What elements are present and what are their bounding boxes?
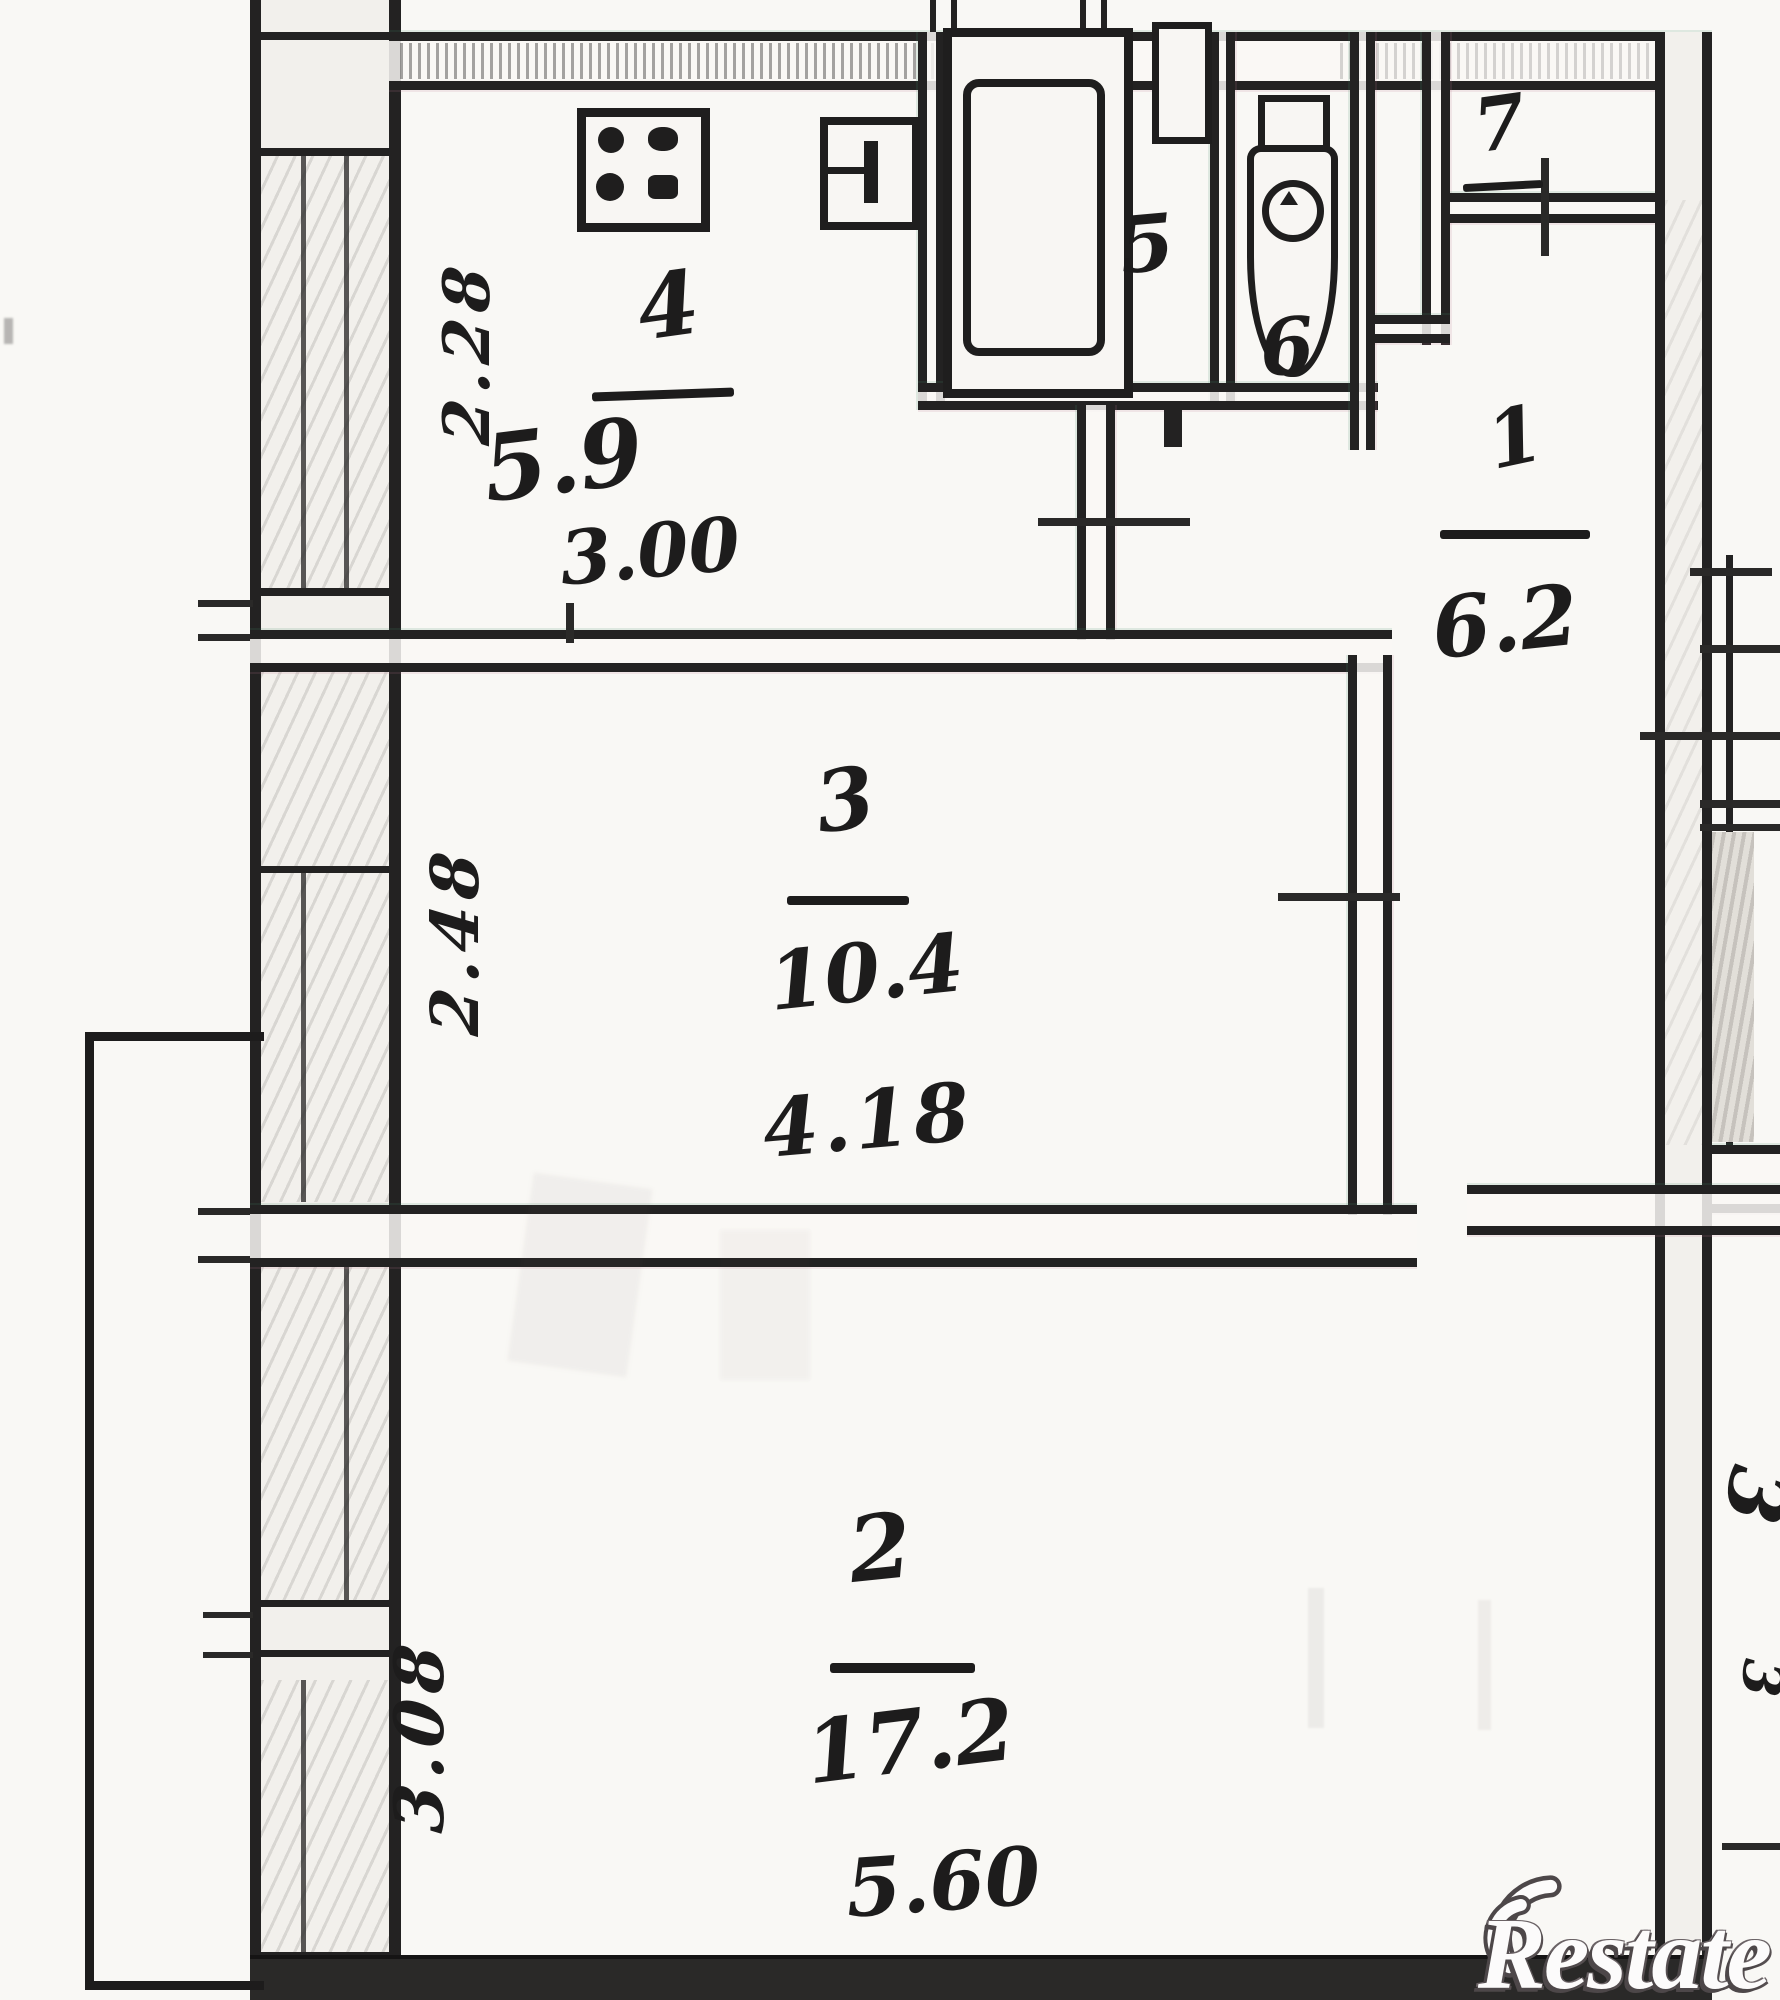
bathtub-inner bbox=[963, 79, 1105, 356]
room-label-room2-number: 2 bbox=[844, 1500, 916, 1596]
wall-shaft-connector bbox=[1375, 315, 1450, 343]
right-stub bbox=[1700, 645, 1780, 653]
wall-vent-shaft bbox=[1422, 32, 1450, 345]
fraction-bar-room3 bbox=[787, 896, 909, 905]
window-segment bbox=[261, 672, 389, 1202]
faint-smudge bbox=[1308, 1588, 1324, 1728]
wall-wc-right bbox=[1350, 32, 1375, 450]
door-tick-room3 bbox=[1278, 893, 1400, 901]
window-glass-line bbox=[344, 1267, 349, 1600]
wall-divider bbox=[250, 32, 400, 40]
bathtub-icon bbox=[943, 28, 1133, 398]
edge-mark-upper: 3 bbox=[1712, 1461, 1780, 1530]
scan-artifact bbox=[4, 318, 13, 344]
door-jamb-bath bbox=[1164, 405, 1182, 447]
burner bbox=[648, 127, 678, 151]
right-window-segment bbox=[1712, 832, 1754, 1142]
sink-icon bbox=[820, 117, 920, 230]
room-label-kitchen-number: 4 bbox=[632, 257, 705, 353]
balcony-outline bbox=[85, 1032, 264, 1990]
dim-label-kitchen-width: 3.00 bbox=[557, 507, 743, 596]
floorplan-scan: 2.28 4 5.9 3.00 2.48 3 10.4 4.18 3.08 2 … bbox=[0, 0, 1780, 2000]
dim-tick bbox=[198, 634, 253, 641]
wall-kitchen-bath bbox=[918, 32, 945, 410]
room-label-closet-number: 7 bbox=[1469, 84, 1530, 164]
underline-closet bbox=[1463, 180, 1543, 192]
wall-divider bbox=[250, 588, 400, 596]
top-wall-hatch bbox=[400, 43, 940, 79]
edge-mark-lower: 3 bbox=[1733, 1657, 1780, 1699]
wall-bath-wc bbox=[1210, 32, 1235, 405]
wall-room3-right bbox=[1348, 655, 1392, 1215]
burner bbox=[596, 173, 624, 201]
dim-tick bbox=[1722, 1843, 1780, 1850]
room-label-bath-number: 5 bbox=[1117, 204, 1178, 286]
right-wall-outer-line bbox=[1702, 32, 1712, 1958]
sink-tap-handle bbox=[864, 141, 878, 203]
wall-divider bbox=[250, 148, 400, 156]
faint-smudge bbox=[507, 1173, 652, 1378]
right-wall-inner-line bbox=[1655, 32, 1665, 1958]
wall-divider bbox=[250, 1600, 400, 1607]
dim-tick bbox=[1640, 732, 1780, 740]
room-label-hall-area: 6.2 bbox=[1428, 573, 1582, 672]
room-label-hall-number: 1 bbox=[1480, 394, 1549, 482]
room-label-room2-area: 17.2 bbox=[801, 1687, 1019, 1798]
wall-divider bbox=[250, 866, 400, 873]
dim-label-room2-depth: 3.08 bbox=[386, 1635, 454, 1836]
fraction-bar-hall bbox=[1440, 530, 1590, 539]
wall-kitchen-bottom bbox=[250, 630, 1392, 672]
wall-room3-room2 bbox=[250, 1205, 1417, 1267]
toilet-seat bbox=[1262, 180, 1324, 242]
dim-tick bbox=[198, 600, 253, 607]
room-label-wc-number: 6 bbox=[1257, 307, 1318, 389]
sink-tap bbox=[828, 167, 868, 174]
window-segment bbox=[261, 1267, 389, 1600]
burner bbox=[598, 127, 624, 153]
watermark-text: Restate bbox=[1478, 1896, 1770, 2000]
window-glass-line bbox=[344, 150, 349, 588]
room-label-room3-number: 3 bbox=[810, 754, 880, 845]
wall-divider bbox=[250, 1650, 400, 1657]
top-wall-hatch bbox=[1340, 43, 1655, 79]
room-label-kitchen-area: 5.9 bbox=[478, 405, 648, 516]
burner bbox=[648, 175, 678, 199]
door-tick-kitchen bbox=[1038, 518, 1190, 526]
dim-label-room2-width: 5.60 bbox=[843, 1835, 1043, 1928]
window-glass-line bbox=[301, 1680, 306, 1952]
dim-tick-300 bbox=[566, 603, 574, 643]
dim-label-room3-depth: 2.48 bbox=[422, 842, 488, 1038]
right-wall-cavity bbox=[1665, 200, 1702, 1145]
right-stub bbox=[1700, 824, 1780, 831]
window-glass-line bbox=[301, 872, 306, 1202]
dim-label-room3-width: 4.18 bbox=[759, 1071, 976, 1169]
toilet-drain bbox=[1280, 191, 1298, 205]
door-tick-closet bbox=[1541, 158, 1549, 256]
right-stub bbox=[1690, 568, 1772, 576]
right-stub bbox=[1700, 800, 1780, 808]
window-segment bbox=[261, 150, 389, 588]
stove-icon bbox=[577, 108, 710, 232]
fraction-bar-room2 bbox=[830, 1663, 975, 1673]
water-heater-icon bbox=[1152, 22, 1212, 144]
faint-smudge bbox=[720, 1230, 810, 1380]
wall-closet-bottom bbox=[1450, 193, 1655, 223]
wall-hall-room2 bbox=[1467, 1185, 1780, 1235]
room-label-room3-area: 10.4 bbox=[765, 922, 967, 1022]
window-glass-line bbox=[301, 150, 306, 588]
window-segment bbox=[261, 1680, 389, 1952]
faint-smudge bbox=[1478, 1600, 1491, 1730]
